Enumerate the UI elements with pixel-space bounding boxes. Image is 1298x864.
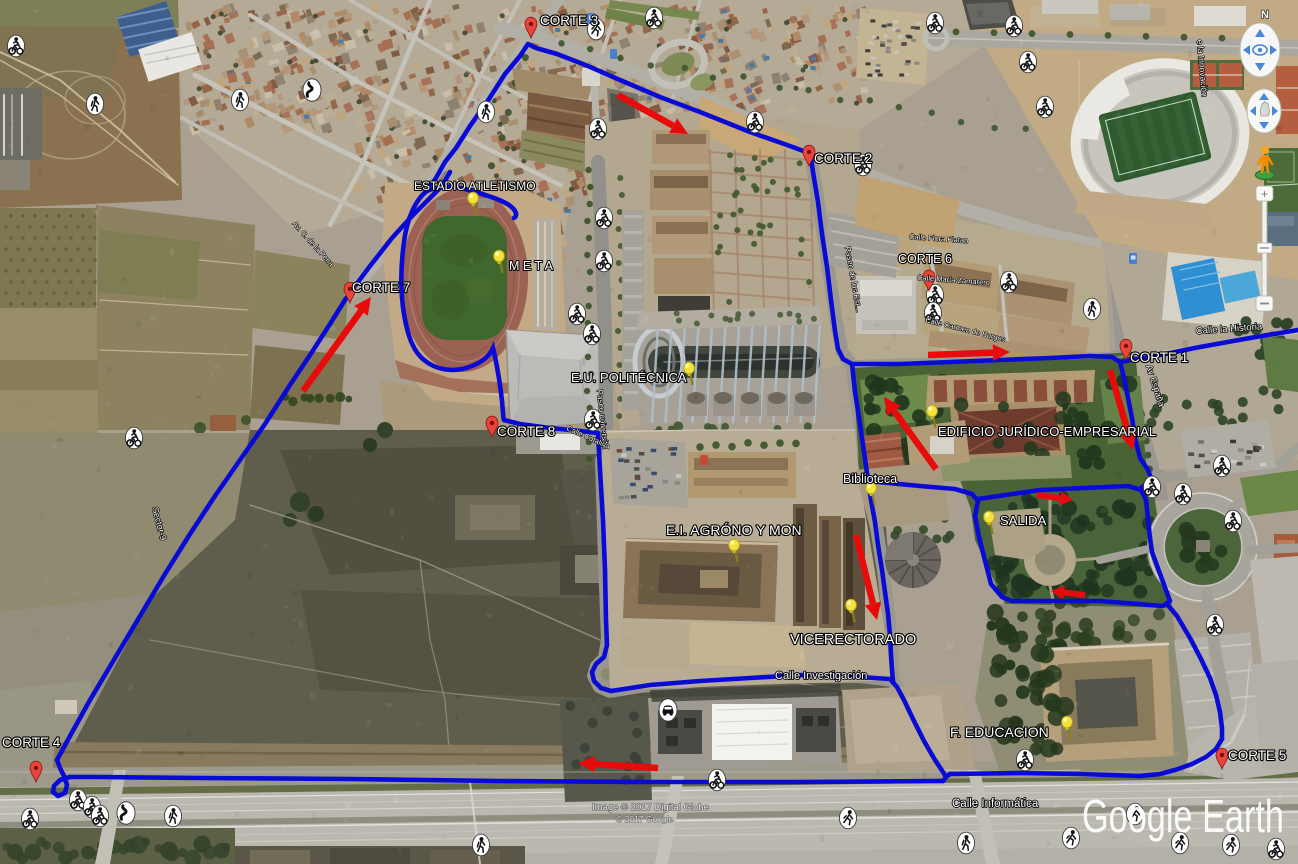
svg-text:CORTE 5: CORTE 5: [1228, 748, 1286, 763]
svg-text:VICERECTORADO: VICERECTORADO: [790, 632, 916, 648]
svg-text:Calle Investigación: Calle Investigación: [775, 670, 867, 682]
svg-text:SALIDA: SALIDA: [1000, 513, 1047, 528]
svg-text:CORTE 1: CORTE 1: [1130, 350, 1188, 365]
svg-text:E.U. POLITÉCNICA: E.U. POLITÉCNICA: [571, 370, 687, 385]
svg-text:E.I. AGRÓNO Y MON: E.I. AGRÓNO Y MON: [666, 522, 802, 538]
svg-text:+: +: [1261, 187, 1268, 201]
svg-text:CORTE 4: CORTE 4: [2, 735, 61, 750]
svg-text:CORTE 3: CORTE 3: [540, 13, 598, 28]
svg-text:CORTE 2: CORTE 2: [814, 151, 872, 166]
svg-text:CORTE 6: CORTE 6: [898, 252, 952, 266]
svg-text:ESTADIO ATLETISMO: ESTADIO ATLETISMO: [414, 179, 536, 193]
svg-text:EDIFICIO JURÍDICO-EMPRESARIAL: EDIFICIO JURÍDICO-EMPRESARIAL: [938, 424, 1156, 439]
svg-text:N: N: [1261, 9, 1269, 21]
svg-text:Biblioteca: Biblioteca: [843, 472, 897, 486]
svg-text:© 2017 Google: © 2017 Google: [616, 814, 674, 824]
svg-text:Image © 2017 Digital Globe: Image © 2017 Digital Globe: [592, 802, 709, 813]
svg-text:Google Earth: Google Earth: [1082, 790, 1284, 842]
svg-text:M E T A: M E T A: [509, 259, 554, 273]
svg-text:CORTE 8: CORTE 8: [497, 424, 555, 439]
svg-text:CORTE 7: CORTE 7: [352, 280, 410, 295]
svg-text:F. EDUCACION: F. EDUCACION: [950, 724, 1049, 740]
svg-text:Calle Informática: Calle Informática: [952, 798, 1039, 810]
